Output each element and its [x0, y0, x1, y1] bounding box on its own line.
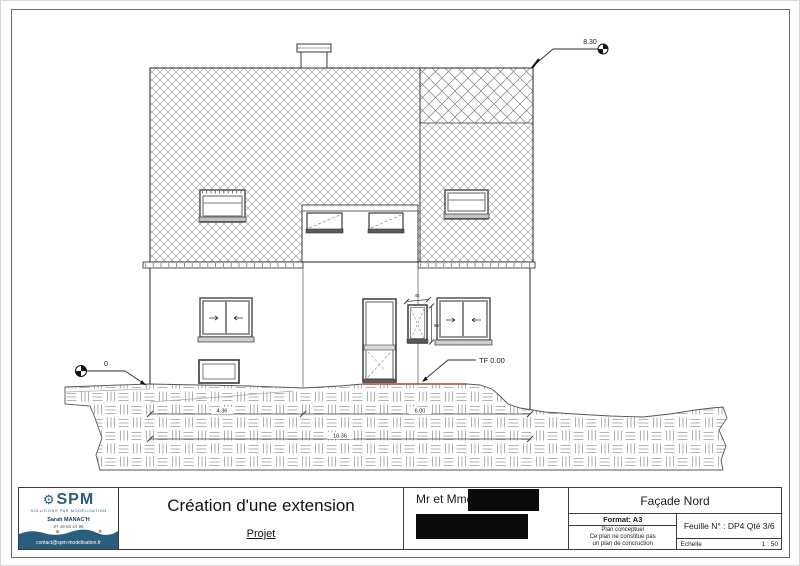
ridge-level-label: 8.30 — [583, 39, 597, 46]
roof-window-left — [199, 190, 246, 222]
dim-total-label: 10.36 — [333, 434, 347, 440]
client-label: Mr et Mme — [416, 492, 473, 506]
redaction-box — [468, 489, 539, 511]
small-window-width-label: 45 — [414, 293, 420, 298]
window-ground-left — [198, 298, 254, 342]
note-line: Ce plan ne constitue pas — [590, 534, 656, 541]
view-title: Façade Nord — [569, 488, 781, 514]
small-window-height-label: 95 — [434, 323, 440, 328]
roof-extension-hatch — [420, 68, 533, 123]
contact-name: Sarah MANAC'H — [19, 517, 118, 523]
tf-level-label: TF 0.00 — [479, 356, 505, 365]
note-line: Plan conceptuel — [601, 527, 644, 534]
client-cell: Mr et Mme — [404, 488, 569, 549]
window-small — [407, 305, 428, 343]
company-name: SPM — [56, 492, 94, 507]
roof — [143, 44, 535, 268]
tf-level-marker: TF 0.00 — [422, 356, 505, 382]
plan-notes: Plan conceptuel Ce plan ne constitue pas… — [569, 526, 676, 549]
terrain — [65, 384, 727, 470]
project-title: Création d'une extension — [167, 496, 355, 516]
door-window-center — [363, 299, 396, 383]
dim-left-label: 4.36 — [217, 409, 228, 415]
project-cell: Création d'une extension Projet — [119, 488, 404, 549]
roof-window-right — [444, 190, 489, 219]
company-tagline: solutions par modélisation — [19, 508, 118, 513]
window-ground-right — [435, 298, 492, 345]
note-line: un plan de concruction — [593, 541, 653, 548]
contact-email: contact@spm-modelisation.fr — [36, 540, 101, 546]
scale-value: 1 : 50 — [762, 541, 778, 548]
company-card: ⚙ SPM solutions par modélisation Sarah M… — [19, 488, 119, 549]
scale-label: Echelle — [680, 541, 701, 548]
card-footer-band: contact@spm-modelisation.fr — [19, 536, 118, 549]
scale-row: Echelle 1 : 50 — [677, 538, 781, 549]
sheet-info-cell: Façade Nord Format: A3 Plan conceptuel C… — [569, 488, 781, 549]
ground-level-marker: 0 — [76, 361, 147, 385]
dormer-window-left — [306, 213, 343, 233]
project-label: Projet — [247, 528, 276, 540]
dormer-window-right — [368, 213, 404, 233]
terrain-mass — [65, 384, 727, 470]
ground-level-label: 0 — [104, 361, 108, 368]
redaction-box — [416, 514, 528, 539]
chimney — [297, 44, 331, 68]
company-logo: ⚙ SPM — [19, 492, 118, 507]
plan-sheet: 4.36 6.00 10.36 45 95 8.30 — [0, 0, 800, 566]
title-block: ⚙ SPM solutions par modélisation Sarah M… — [18, 487, 782, 550]
gear-icon: ⚙ — [43, 493, 55, 506]
format-label: Format: A3 — [569, 514, 676, 526]
window-basement-left — [199, 360, 239, 383]
elevation-drawing: 4.36 6.00 10.36 45 95 8.30 — [0, 0, 800, 566]
dim-right-label: 6.00 — [415, 409, 426, 415]
sheet-number: Feuille N° : DP4 Qté 3/6 — [677, 514, 781, 538]
ridge-level-marker: 8.30 — [532, 39, 608, 68]
